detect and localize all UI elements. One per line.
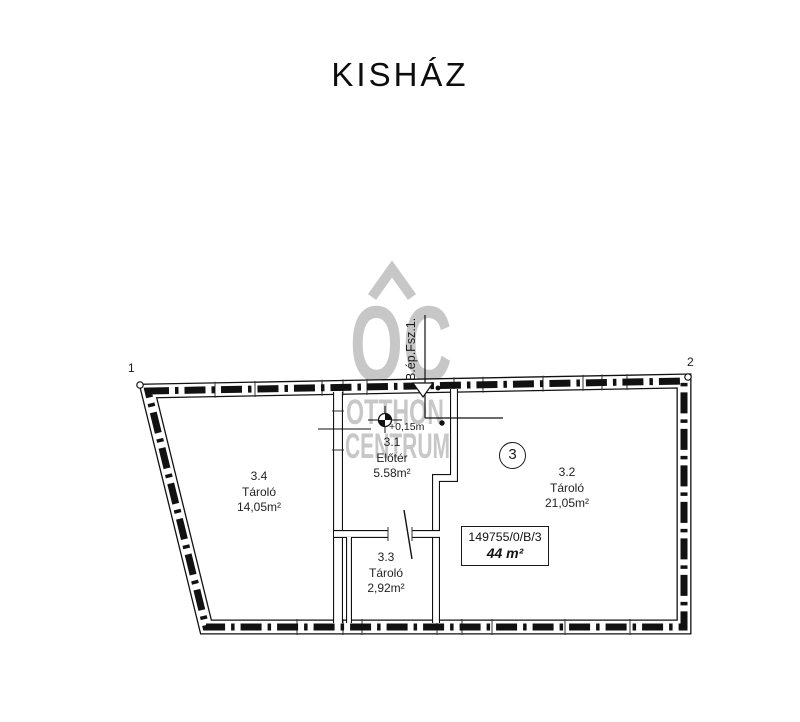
room-area: 14,05m² <box>199 500 319 516</box>
parcel-total-area: 44 m² <box>462 545 548 561</box>
room-label-3-2: 3.2 Tároló 21,05m² <box>507 465 627 512</box>
room-area: 2,92m² <box>326 581 446 597</box>
room-area: 21,05m² <box>507 496 627 512</box>
corner-marker-2-icon <box>685 374 691 380</box>
room-name: Tároló <box>507 481 627 497</box>
unit-number-badge: 3 <box>499 442 526 469</box>
wall-dot-marker <box>436 386 441 391</box>
corner-marker-1-icon <box>137 382 143 388</box>
level-label: +0,15m <box>389 421 424 433</box>
parcel-box: 149755/0/B/3 44 m² <box>461 526 549 566</box>
room-number: 3.1 <box>332 435 452 451</box>
leader-dot-marker <box>439 420 444 425</box>
room-label-3-1: 3.1 Előtér 5.58m² <box>332 435 452 482</box>
room-label-3-3: 3.3 Tároló 2,92m² <box>326 550 446 597</box>
room-name: Tároló <box>326 566 446 582</box>
building-storey-label: B.ép.Fsz.1. <box>404 318 418 381</box>
floor-plan-drawing: OC OTTHON CENTRUM <box>0 0 800 722</box>
room-name: Előtér <box>332 451 452 467</box>
room-label-3-4: 3.4 Tároló 14,05m² <box>199 469 319 516</box>
parcel-id: 149755/0/B/3 <box>462 530 548 544</box>
room-number: 3.4 <box>199 469 319 485</box>
room-number: 3.2 <box>507 465 627 481</box>
corner-number-1: 1 <box>128 361 135 375</box>
room-area: 5.58m² <box>332 466 452 482</box>
room-name: Tároló <box>199 485 319 501</box>
corner-number-2: 2 <box>687 355 694 369</box>
room-number: 3.3 <box>326 550 446 566</box>
